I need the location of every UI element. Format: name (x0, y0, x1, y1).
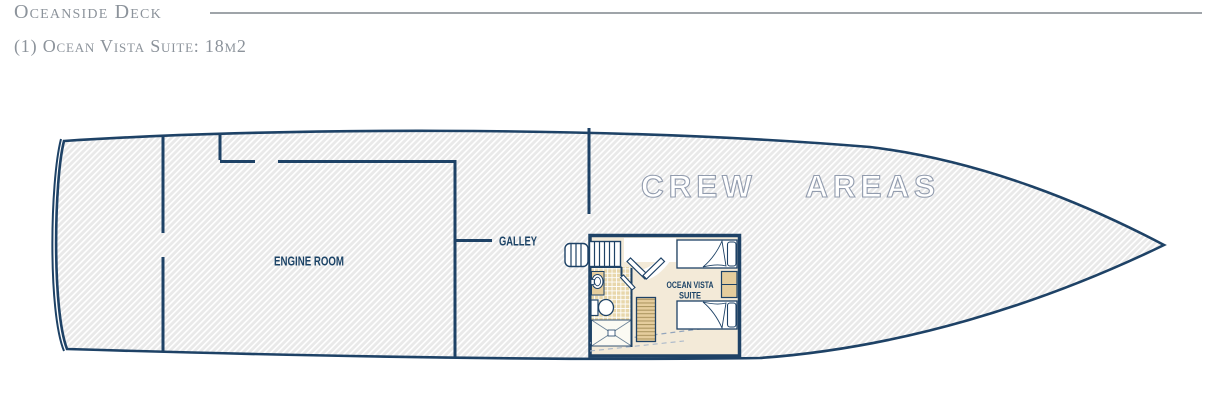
companionway-ladder (565, 242, 621, 267)
sink-faucet (591, 280, 594, 285)
closet-louver (637, 298, 656, 342)
suite-label-line1: OCEAN VISTA (667, 280, 714, 290)
bed-top (677, 240, 737, 268)
bed-bottom (677, 301, 737, 329)
galley-label: GALLEY (499, 235, 537, 249)
shower-drain (608, 330, 615, 336)
nightstand (722, 272, 738, 298)
suite-label-line2: SUITE (679, 291, 701, 301)
pillow-bottom (728, 303, 737, 327)
crew-areas-label: CREW AREAS (641, 168, 944, 204)
engine-room-label: ENGINE ROOM (274, 255, 344, 269)
toilet-tank (591, 300, 598, 316)
pillow-top (728, 242, 737, 266)
deck-plan: CREW AREAS ENGINE ROOM GALLEY (0, 0, 1219, 406)
deck-plan-svg: CREW AREAS ENGINE ROOM GALLEY (0, 0, 1219, 406)
toilet-bowl (599, 300, 614, 316)
